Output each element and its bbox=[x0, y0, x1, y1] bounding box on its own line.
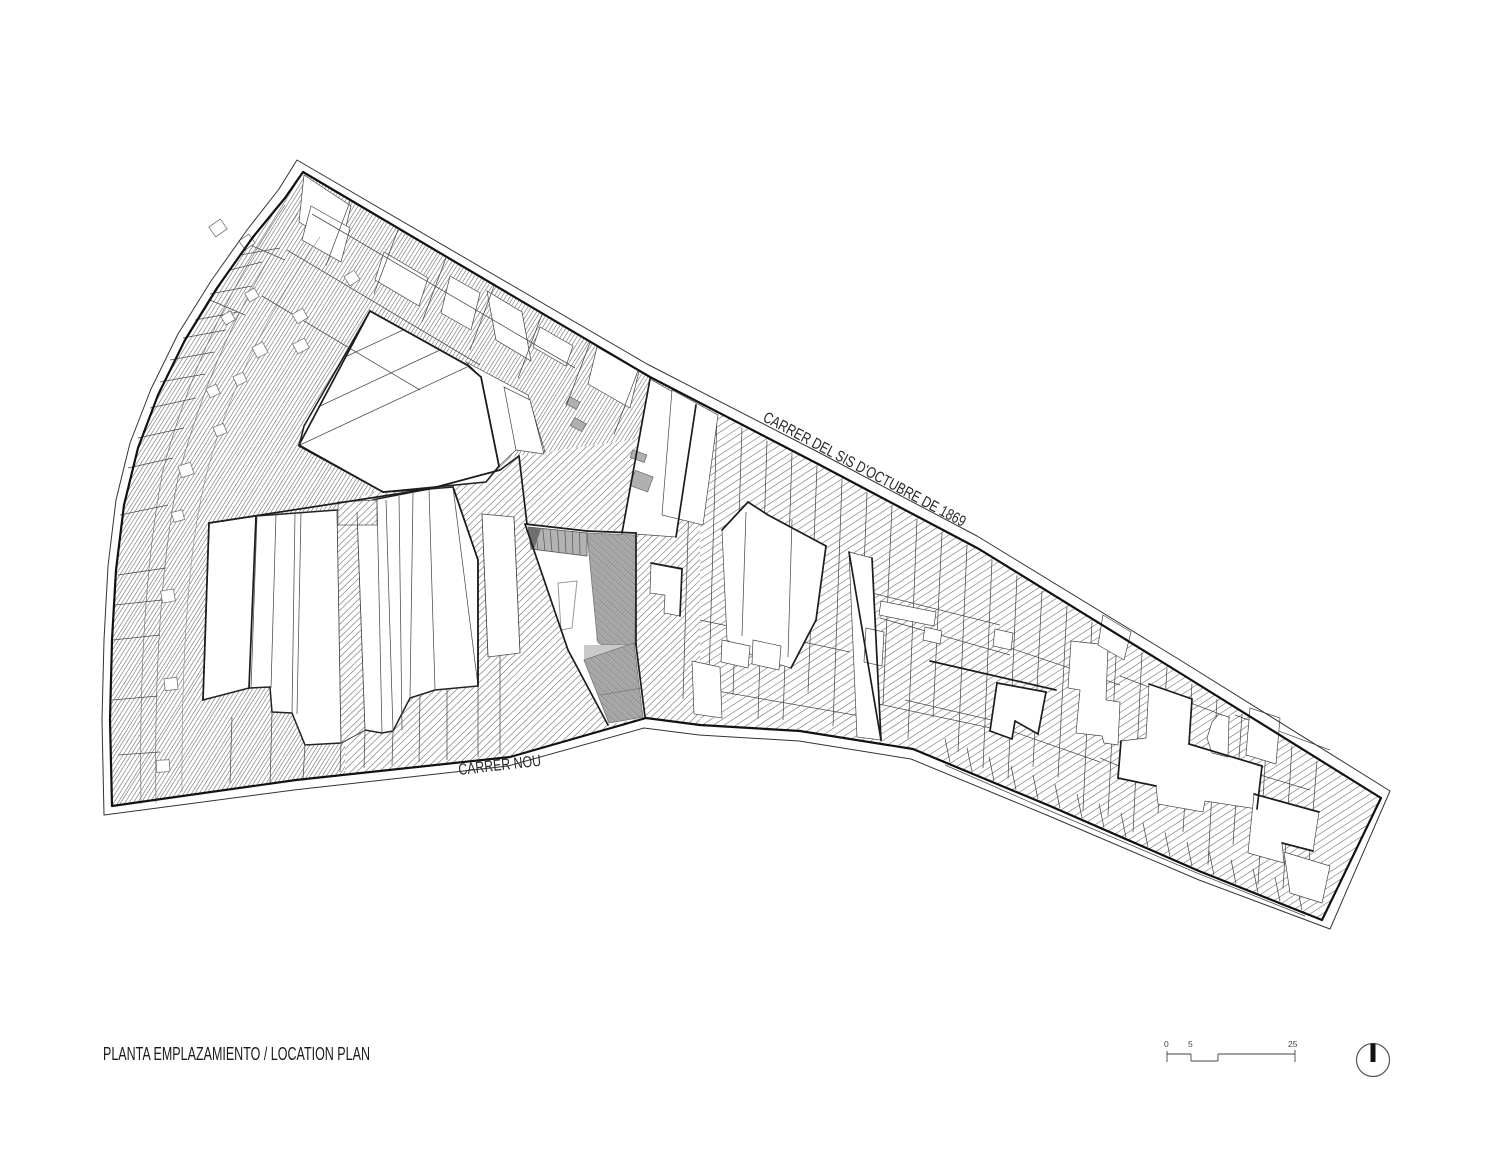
svg-text:5: 5 bbox=[1188, 1039, 1193, 1049]
svg-text:0: 0 bbox=[1164, 1039, 1169, 1049]
svg-text:PLANTA EMPLAZAMIENTO / LOCATIO: PLANTA EMPLAZAMIENTO / LOCATION PLAN bbox=[103, 1043, 370, 1064]
svg-text:25: 25 bbox=[1288, 1039, 1298, 1049]
